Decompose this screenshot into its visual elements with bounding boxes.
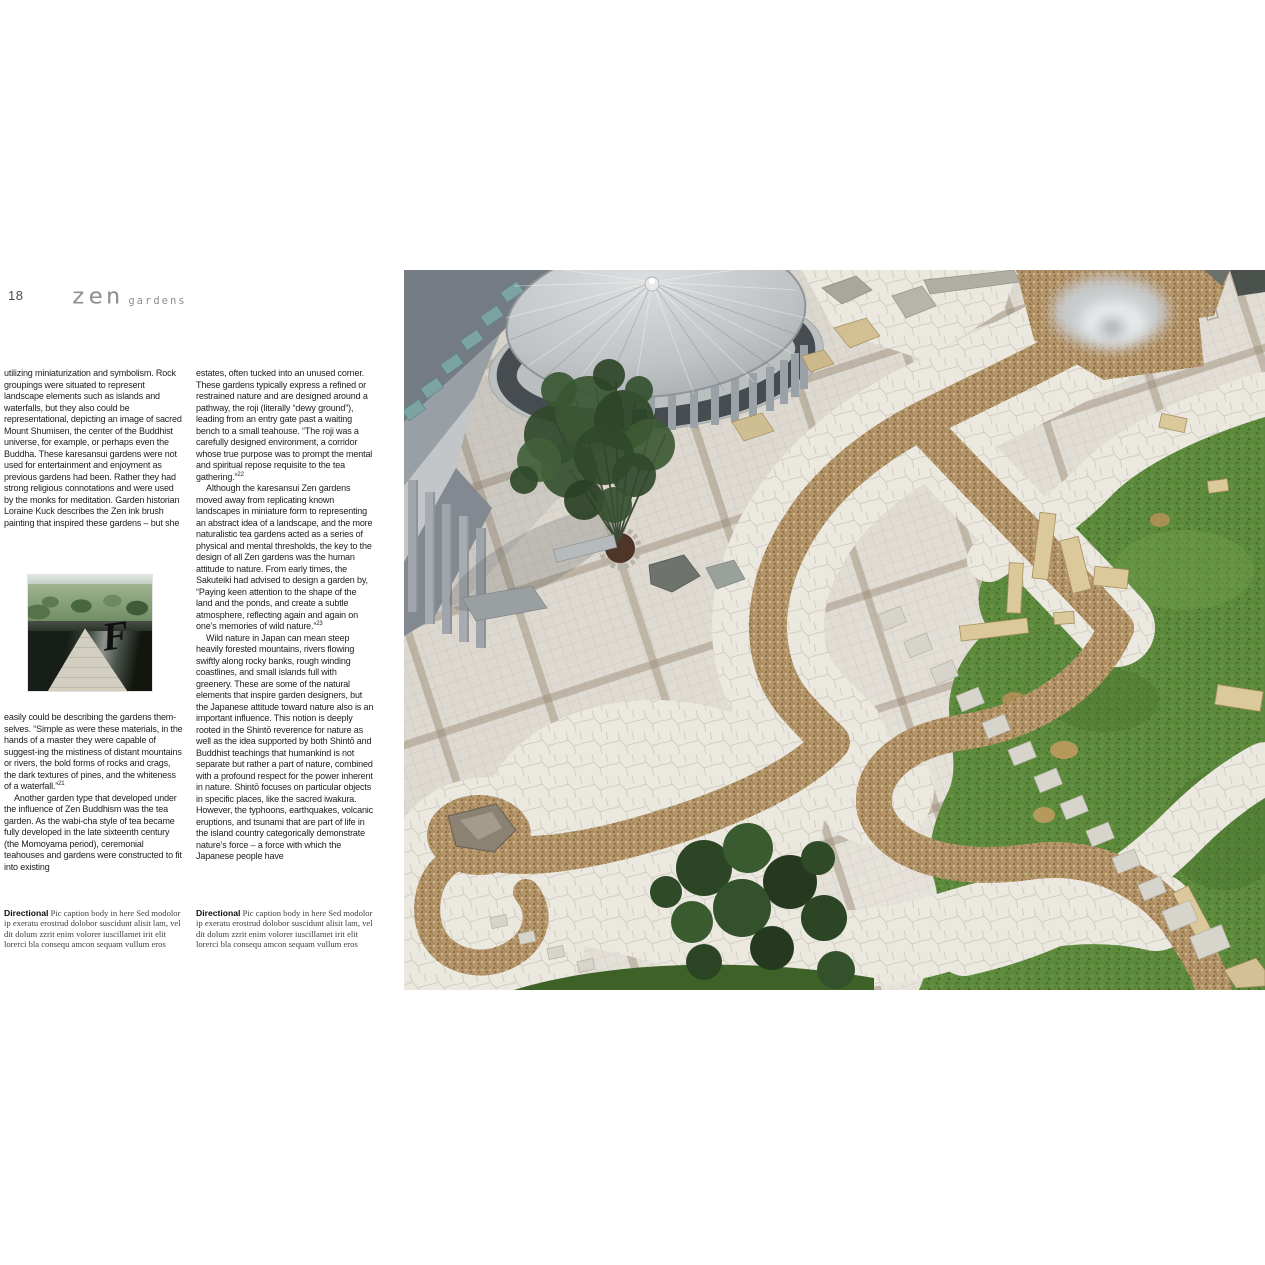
dry-grass-patch <box>1033 807 1055 823</box>
paragraph: Another garden type that developed under… <box>4 793 183 874</box>
chapter-subtitle: gardens <box>128 295 186 307</box>
text-column-1: utilizing miniaturization and symbolism.… <box>4 368 183 529</box>
caption-lead: Directional <box>196 908 240 918</box>
paragraph: utilizing miniaturization and symbolism.… <box>4 368 183 529</box>
dry-grass-patch <box>1150 513 1170 527</box>
inset-wall-edge <box>28 621 152 630</box>
inset-trees <box>28 584 152 623</box>
paragraph: Wild nature in Japan can mean steep heav… <box>196 633 375 863</box>
book-page: { "page": { "number": "18", "header_titl… <box>0 0 1265 1265</box>
chapter-title: zen <box>71 283 123 309</box>
main-garden-photo <box>404 270 1265 990</box>
paragraph: Although the karesansui Zen gardens move… <box>196 483 375 633</box>
garden-photo-art <box>404 270 1265 990</box>
caption-lead: Directional <box>4 908 48 918</box>
text-column-1-lower: easily could be describing the gardens t… <box>4 712 183 873</box>
footnote-ref: 22 <box>237 472 243 478</box>
inset-photo: F <box>28 575 152 691</box>
paragraph: estates, often tucked into an unused cor… <box>196 368 375 483</box>
caption-left: Directional Pic caption body in here Sed… <box>4 908 188 950</box>
mist-fountain <box>1052 276 1168 348</box>
footnote-ref: 23 <box>316 621 322 627</box>
footnote-ref: 21 <box>58 781 64 787</box>
page-number: 18 <box>8 288 23 303</box>
chapter-header: zengardens <box>71 282 187 310</box>
paragraph: easily could be describing the gardens t… <box>4 712 183 793</box>
text-column-2: estates, often tucked into an unused cor… <box>196 368 375 863</box>
caption-right: Directional Pic caption body in here Sed… <box>196 908 380 950</box>
dry-grass-patch <box>1050 741 1078 759</box>
